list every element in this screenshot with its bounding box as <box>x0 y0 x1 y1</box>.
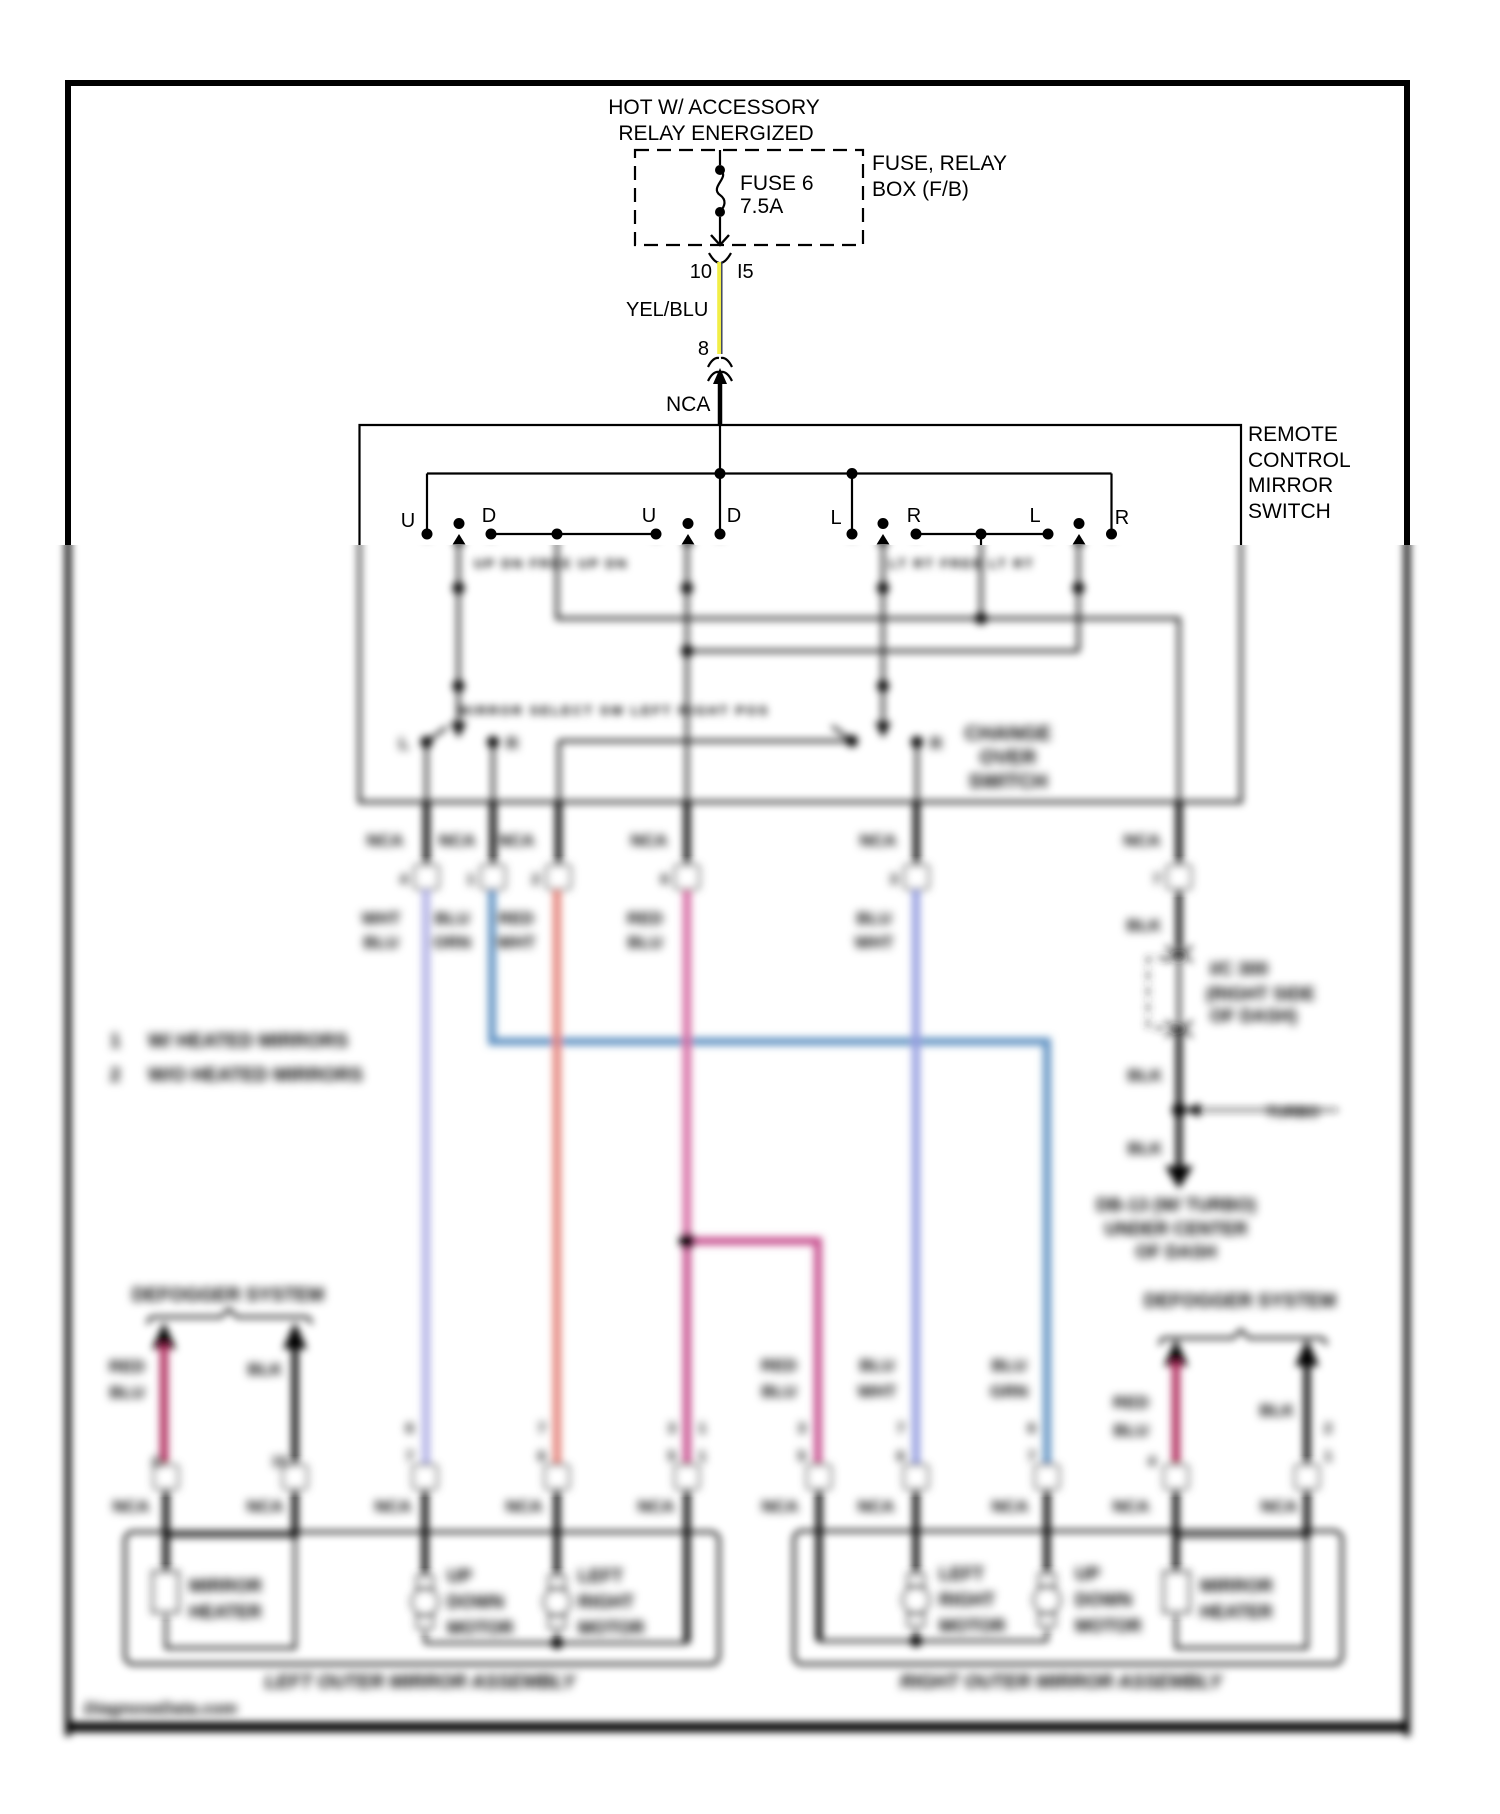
svg-text:NCA: NCA <box>858 1497 895 1516</box>
svg-text:RIGHT OUTER MIRROR ASSEMBLY: RIGHT OUTER MIRROR ASSEMBLY <box>900 1672 1224 1693</box>
svg-text:BLU: BLU <box>110 1383 145 1402</box>
svg-text:BLU: BLU <box>860 1356 895 1375</box>
svg-text:RED: RED <box>1113 1393 1149 1412</box>
svg-text:L: L <box>830 507 841 529</box>
svg-text:FUSE 6: FUSE 6 <box>740 172 814 195</box>
svg-text:10: 10 <box>271 1453 288 1470</box>
svg-text:4: 4 <box>152 1453 161 1470</box>
svg-text:BLK: BLK <box>1260 1401 1296 1420</box>
svg-text:UP: UP <box>1075 1564 1100 1584</box>
svg-text:L: L <box>399 734 409 753</box>
svg-text:BLK: BLK <box>248 1360 284 1379</box>
svg-text:3: 3 <box>668 1420 676 1437</box>
svg-text:NCA: NCA <box>638 1497 675 1516</box>
svg-text:NCA: NCA <box>1124 831 1161 850</box>
svg-text:R: R <box>930 734 942 753</box>
svg-text:NCA: NCA <box>631 831 668 850</box>
svg-text:GRN: GRN <box>990 1382 1028 1401</box>
svg-text:MIRROR SELECT SW LEFT RIGH: MIRROR SELECT SW LEFT RIGHT POS <box>458 703 770 718</box>
svg-text:HEATER: HEATER <box>1200 1602 1273 1622</box>
svg-text:NCA: NCA <box>666 393 710 416</box>
svg-text:LEFT: LEFT <box>578 1566 623 1586</box>
svg-text:WHT: WHT <box>497 933 536 952</box>
svg-text:D: D <box>482 505 496 527</box>
svg-text:SWITCH: SWITCH <box>1248 500 1331 523</box>
svg-text:7: 7 <box>897 1420 905 1437</box>
svg-text:OF DASH: OF DASH <box>1136 1242 1217 1262</box>
svg-text:1: 1 <box>1324 1448 1332 1465</box>
svg-text:NCA: NCA <box>247 1497 284 1516</box>
svg-text:NCA: NCA <box>367 831 404 850</box>
svg-text:BLU: BLU <box>1114 1421 1149 1440</box>
svg-text:ORN: ORN <box>433 933 471 952</box>
svg-text:NCA: NCA <box>992 1497 1029 1516</box>
svg-text:1: 1 <box>467 871 475 888</box>
svg-text:MOTOR: MOTOR <box>447 1618 514 1638</box>
svg-text:NCA: NCA <box>1261 1497 1298 1516</box>
svg-text:RIGHT: RIGHT <box>578 1592 634 1612</box>
svg-text:HEATER: HEATER <box>189 1602 262 1622</box>
svg-text:6: 6 <box>1028 1420 1036 1437</box>
svg-text:7: 7 <box>1028 1448 1036 1465</box>
svg-text:OVER: OVER <box>980 747 1037 769</box>
svg-text:BLU: BLU <box>364 933 399 952</box>
svg-text:5: 5 <box>798 1448 806 1465</box>
svg-text:NCA: NCA <box>498 831 535 850</box>
svg-text:BLU: BLU <box>435 909 470 928</box>
svg-text:DOWN: DOWN <box>447 1592 504 1612</box>
svg-text:BLK: BLK <box>1127 916 1163 935</box>
svg-text:MIRROR: MIRROR <box>1200 1576 1273 1596</box>
svg-text:REMOTE: REMOTE <box>1248 423 1338 446</box>
svg-text:CHANGE: CHANGE <box>965 723 1052 745</box>
svg-text:UP: UP <box>447 1566 472 1586</box>
svg-text:BLK: BLK <box>1128 1139 1164 1158</box>
svg-text:NCA: NCA <box>860 831 897 850</box>
svg-text:10: 10 <box>690 261 712 283</box>
svg-text:NCA: NCA <box>113 1497 150 1516</box>
svg-text:2: 2 <box>110 1065 121 1086</box>
svg-text:OF DASH): OF DASH) <box>1210 1006 1297 1026</box>
svg-text:RED: RED <box>498 909 534 928</box>
svg-text:HOT W/ ACCESSORY: HOT W/ ACCESSORY <box>608 96 820 119</box>
svg-text:MOTOR: MOTOR <box>939 1616 1006 1636</box>
svg-text:6: 6 <box>538 1448 546 1465</box>
svg-text:NCA: NCA <box>1113 1497 1150 1516</box>
svg-text:DB-13 (W/ TURBO): DB-13 (W/ TURBO) <box>1096 1195 1256 1215</box>
svg-text:I5: I5 <box>737 261 754 283</box>
svg-text:UNDER CENTER: UNDER CENTER <box>1104 1219 1247 1239</box>
svg-text:2: 2 <box>532 871 540 888</box>
svg-text:LEFT: LEFT <box>939 1564 984 1584</box>
svg-text:BOX (F/B): BOX (F/B) <box>872 178 969 201</box>
svg-text:LEFT OUTER MIRROR ASSEMBLY: LEFT OUTER MIRROR ASSEMBLY <box>265 1672 578 1693</box>
svg-text:RED: RED <box>627 909 663 928</box>
svg-text:4: 4 <box>400 871 409 888</box>
svg-text:6: 6 <box>661 871 669 888</box>
svg-text:1: 1 <box>698 1420 706 1437</box>
svg-text:MIRROR: MIRROR <box>189 1576 262 1596</box>
svg-text:DiagnoseData.com: DiagnoseData.com <box>84 1699 237 1718</box>
svg-text:NCA: NCA <box>762 1497 799 1516</box>
svg-text:L: L <box>1029 505 1040 527</box>
svg-text:BLU: BLU <box>992 1356 1027 1375</box>
svg-text:W/O HEATED MIRRORS: W/O HEATED MIRRORS <box>148 1065 363 1086</box>
svg-text:BLK: BLK <box>1128 1066 1164 1085</box>
svg-text:5: 5 <box>668 1448 676 1465</box>
svg-text:FUSE, RELAY: FUSE, RELAY <box>872 152 1007 175</box>
svg-text:8: 8 <box>698 338 709 360</box>
svg-text:2: 2 <box>1324 1420 1332 1437</box>
svg-text:DEFOGGER SYSTEM: DEFOGGER SYSTEM <box>132 1285 324 1306</box>
svg-text:RED: RED <box>761 1356 797 1375</box>
svg-text:7: 7 <box>1153 871 1161 888</box>
svg-text:1: 1 <box>698 1448 706 1465</box>
svg-text:RELAY ENERGIZED: RELAY ENERGIZED <box>618 122 813 145</box>
svg-text:R: R <box>907 505 921 527</box>
svg-text:4: 4 <box>1148 1453 1157 1470</box>
svg-text:7.5A: 7.5A <box>740 195 783 218</box>
svg-text:MOTOR: MOTOR <box>1075 1616 1142 1636</box>
svg-text:1: 1 <box>110 1031 121 1052</box>
svg-text:R: R <box>506 734 518 753</box>
svg-text:MOTOR: MOTOR <box>578 1618 645 1638</box>
svg-text:CONTROL: CONTROL <box>1248 449 1351 472</box>
svg-text:DOWN: DOWN <box>1075 1590 1132 1610</box>
svg-text:SWITCH: SWITCH <box>969 771 1048 793</box>
svg-text:3: 3 <box>890 871 898 888</box>
svg-text:D: D <box>727 505 741 527</box>
svg-text:I/C 300: I/C 300 <box>1210 959 1268 979</box>
svg-text:6: 6 <box>406 1420 414 1437</box>
svg-text:WHT: WHT <box>362 909 401 928</box>
svg-text:MIRROR: MIRROR <box>1248 474 1333 497</box>
svg-text:BLU: BLU <box>857 909 892 928</box>
svg-text:R: R <box>1115 507 1129 529</box>
svg-text:(RIGHT SIDE: (RIGHT SIDE <box>1206 984 1315 1004</box>
svg-text:7: 7 <box>538 1420 546 1437</box>
svg-text:DEFOGGER SYSTEM: DEFOGGER SYSTEM <box>1144 1291 1336 1312</box>
svg-text:6: 6 <box>897 1448 905 1465</box>
svg-text:TURBO: TURBO <box>1266 1104 1320 1121</box>
svg-text:BLU: BLU <box>762 1382 797 1401</box>
svg-text:YEL/BLU: YEL/BLU <box>626 299 708 321</box>
svg-text:W/ HEATED MIRRORS: W/ HEATED MIRRORS <box>148 1031 348 1052</box>
svg-text:NCA: NCA <box>375 1497 412 1516</box>
svg-text:WHT: WHT <box>855 933 894 952</box>
svg-text:LT RT FREE LT RT: LT RT FREE LT RT <box>889 556 1035 571</box>
svg-text:3: 3 <box>798 1420 806 1437</box>
svg-text:U: U <box>401 510 415 532</box>
svg-text:BLU: BLU <box>628 933 663 952</box>
svg-text:RED: RED <box>109 1357 145 1376</box>
svg-text:NCA: NCA <box>506 1497 543 1516</box>
svg-text:U: U <box>642 505 656 527</box>
svg-text:UP DN FREE UP DN: UP DN FREE UP DN <box>474 556 628 571</box>
svg-text:RIGHT: RIGHT <box>939 1590 995 1610</box>
svg-text:WHT: WHT <box>858 1382 897 1401</box>
svg-text:NCA: NCA <box>439 831 476 850</box>
svg-text:7: 7 <box>406 1448 414 1465</box>
